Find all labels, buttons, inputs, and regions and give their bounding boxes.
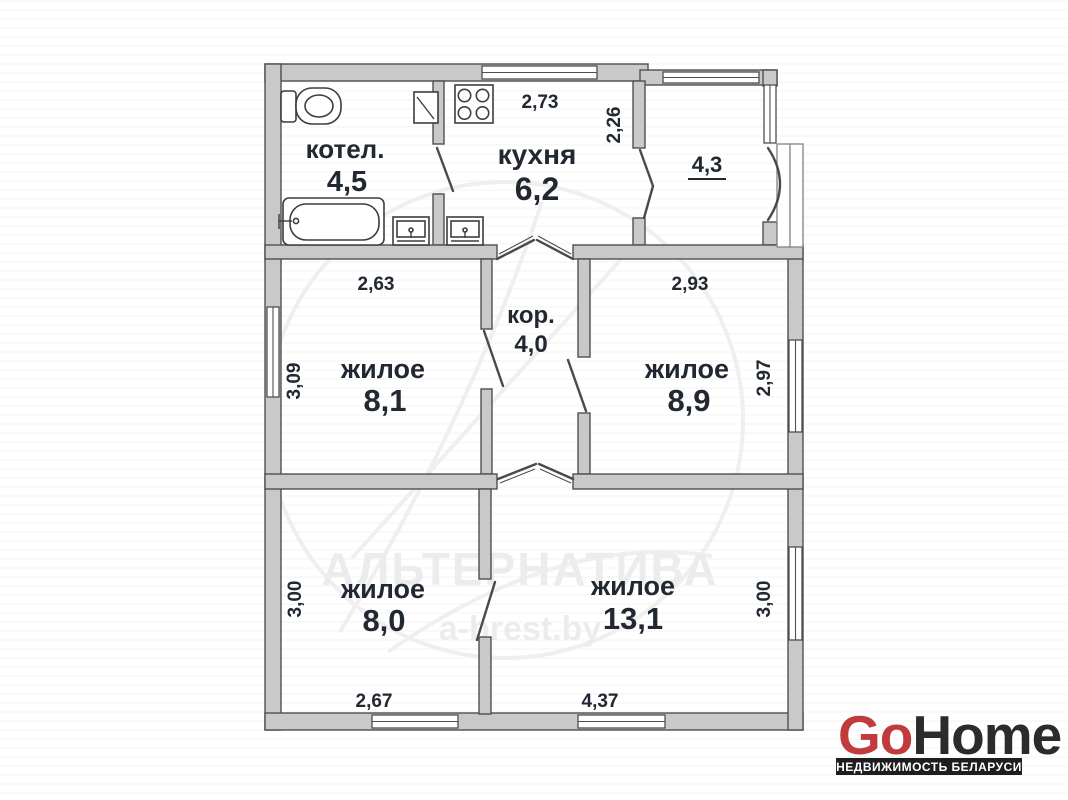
wall-corridor-left-lower — [481, 389, 492, 474]
room-label-boiler: котел. — [306, 134, 385, 164]
dim-living-13-1-depth: 3,00 — [754, 581, 775, 618]
wall-vestibule-right-top — [763, 70, 777, 86]
opening-corridor-living-13-1 — [498, 464, 573, 483]
room-area-kitchen: 6,2 — [515, 171, 559, 207]
window-vestibule-right — [764, 85, 776, 143]
dim-living-8-9-depth: 2,97 — [754, 360, 775, 397]
water-heater-icon — [414, 92, 438, 123]
dim-kitchen-width: 2,73 — [522, 92, 559, 113]
door-boiler-kitchen — [437, 148, 453, 191]
logo-go: Go — [838, 704, 912, 766]
room-label-corridor: кор. — [507, 302, 555, 329]
fixtures — [279, 85, 493, 245]
floor-plan-page: АЛЬТЕРНАТИВА a-brest.by — [0, 0, 1068, 800]
door-corridor-living-8-9 — [568, 360, 586, 411]
stove-icon — [455, 85, 493, 123]
room-area-vestibule: 4,3 — [692, 152, 723, 177]
logo-tagline: НЕДВИЖИМОСТЬ БЕЛАРУСИ — [836, 760, 1022, 774]
room-area-corridor: 4,0 — [514, 331, 547, 358]
wall-kitchen-vestibule-upper — [633, 81, 645, 148]
room-label-living-8-0: жилое — [340, 574, 425, 604]
sink-icon — [447, 217, 483, 245]
floor-plan-drawing: АЛЬТЕРНАТИВА a-brest.by — [0, 0, 1068, 800]
room-label-living-13-1: жилое — [590, 571, 675, 601]
wall-boiler-kitchen-lower — [433, 194, 444, 245]
gohome-logo: GoHome НЕДВИЖИМОСТЬ БЕЛАРУСИ — [836, 704, 1061, 775]
bathtub-icon — [279, 198, 384, 245]
window-kitchen-top — [482, 66, 597, 79]
window-living-top-left — [267, 307, 279, 397]
room-area-living-8-1: 8,1 — [363, 383, 406, 418]
dim-living-8-9-width: 2,93 — [672, 274, 709, 295]
wall-band1-left — [265, 245, 497, 259]
window-living-top-right — [789, 340, 802, 432]
door-kitchen-vestibule — [640, 150, 653, 218]
sink-icon — [393, 217, 429, 245]
room-label-living-8-9: жилое — [644, 354, 729, 384]
watermark-site-url: a-brest.by — [439, 610, 602, 648]
wall-vestibule-right-bottom — [763, 222, 777, 245]
room-label-living-8-1: жилое — [340, 354, 425, 384]
window-living-bottom-right — [578, 715, 665, 728]
dim-living-8-0-depth: 3,00 — [285, 581, 306, 618]
toilet-icon — [281, 88, 341, 124]
wall-bottom-rooms-lower — [479, 637, 491, 714]
wall-band1-right — [573, 245, 803, 259]
room-label-kitchen: кухня — [498, 139, 577, 170]
dim-living-8-1-width: 2,63 — [358, 274, 395, 295]
dim-living-8-1-depth: 3,09 — [284, 363, 305, 400]
dim-living-8-0-width: 2,67 — [356, 691, 393, 712]
wall-kitchen-vestibule-lower — [633, 218, 645, 245]
room-area-living-8-9: 8,9 — [667, 383, 710, 418]
wall-corridor-left-upper — [481, 259, 492, 329]
wall-band2-right — [573, 474, 803, 489]
logo-home: Home — [912, 704, 1061, 766]
opening-kitchen-corridor — [497, 236, 573, 259]
wall-band2-left — [265, 474, 497, 489]
room-area-living-13-1: 13,1 — [603, 601, 663, 636]
window-living-bottom-left — [372, 715, 458, 728]
door-corridor-living-8-1 — [484, 331, 503, 386]
window-vestibule-top — [663, 72, 759, 83]
entry-porch-steps — [777, 144, 803, 247]
window-living-bottom-right-side — [789, 547, 802, 640]
wall-bottom — [265, 713, 803, 730]
dim-kitchen-depth: 2,26 — [604, 107, 625, 144]
wall-corridor-right-upper — [578, 259, 590, 357]
dim-living-13-1-width: 4,37 — [582, 691, 619, 712]
gohome-logo-text: GoHome — [838, 704, 1061, 766]
room-area-living-8-0: 8,0 — [362, 603, 405, 638]
wall-corridor-right-lower — [578, 413, 590, 474]
room-area-boiler: 4,5 — [327, 166, 367, 198]
wall-bottom-rooms-upper — [479, 489, 491, 579]
